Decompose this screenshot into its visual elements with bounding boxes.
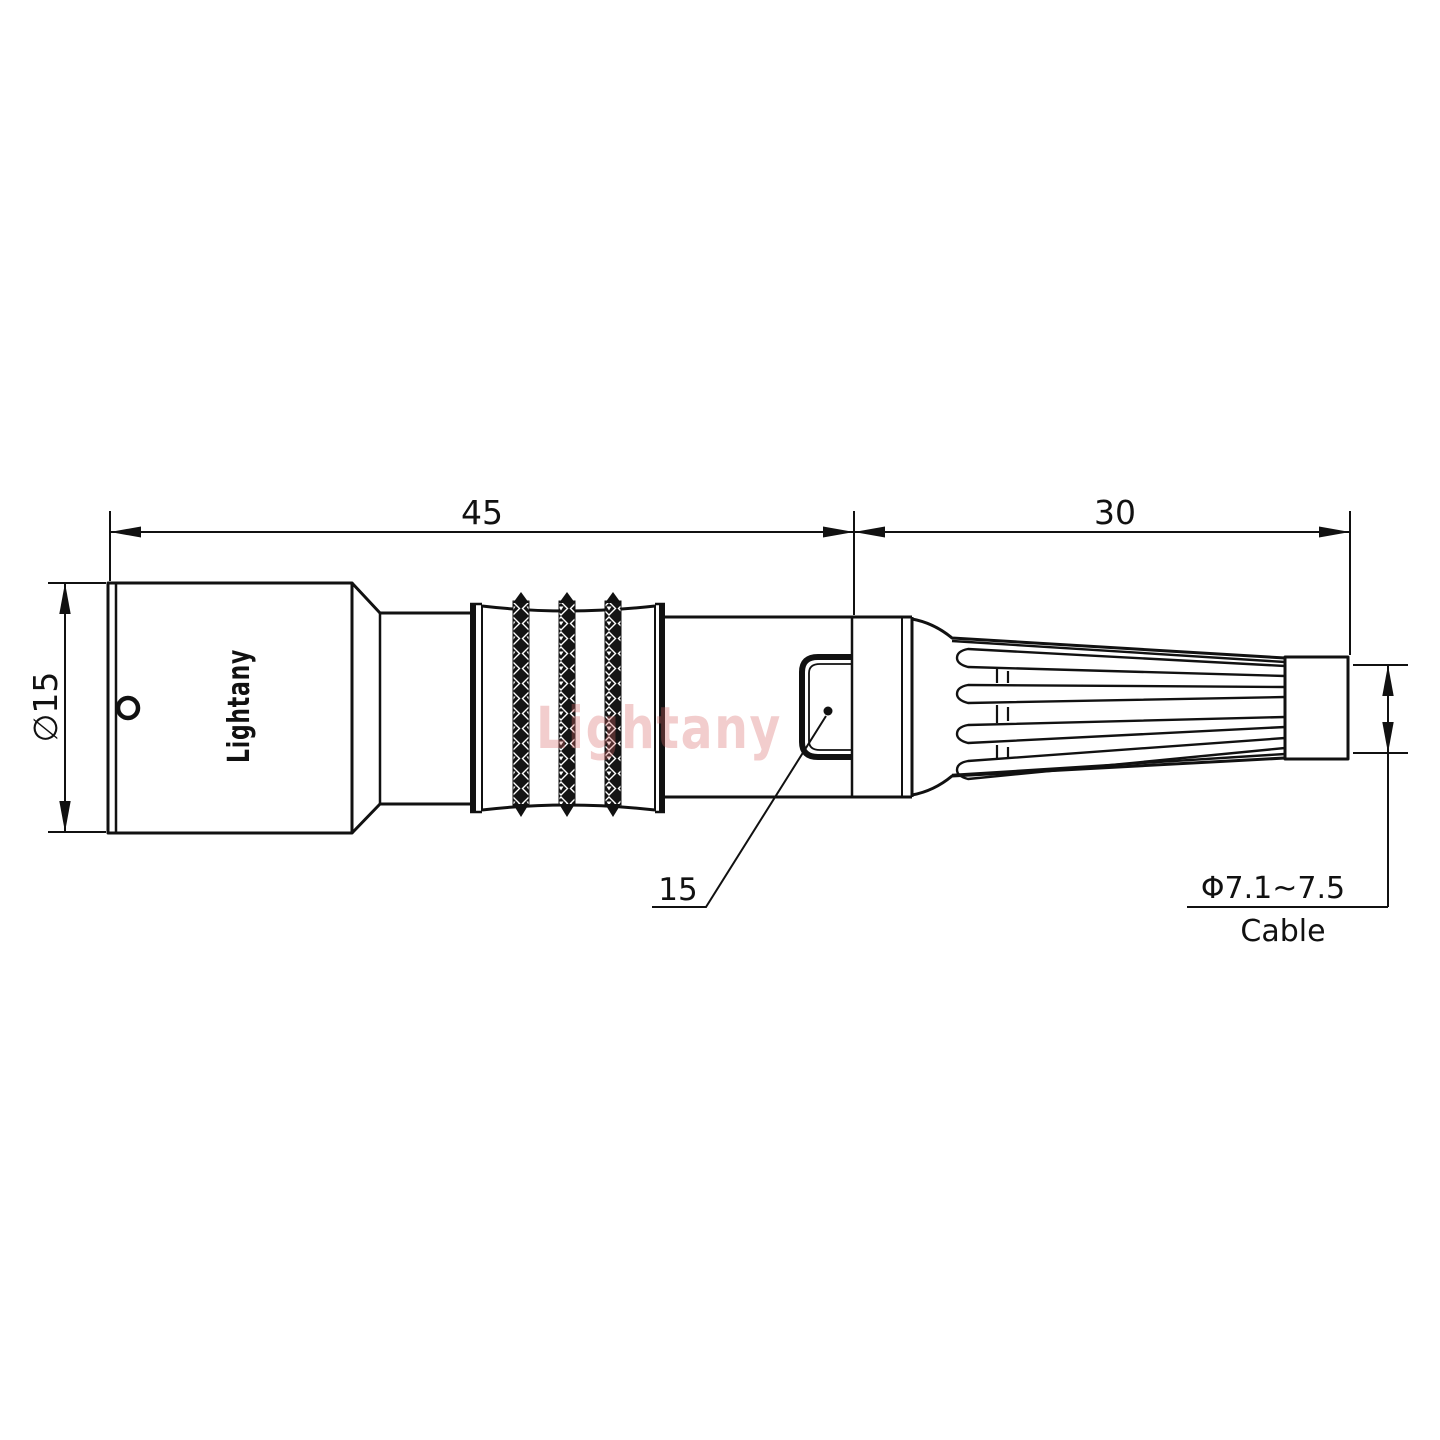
connector-drawing-canvas: Lightany [0,0,1440,1440]
cable-label: Cable [1240,914,1325,949]
strain-relief-rib [957,649,1285,676]
leader-label: 15 [658,872,697,908]
watermark-text: Lightany [536,694,782,762]
shell-hole [118,698,138,718]
rib-root-webs [997,669,1008,759]
brand-text: Lightany [222,649,257,763]
knurl-band [513,592,529,817]
cable-end-cap [1285,657,1348,759]
technical-drawing-page: Lightany [0,0,1440,1440]
dim-rear-length: 30 [1094,493,1136,532]
leader-dot [824,707,833,716]
strain-relief-rib [952,754,1285,775]
dim-cable-diameter: Φ7.1~7.5 [1201,871,1345,906]
strain-relief-rib [957,717,1285,743]
length-dimension: 45 30 [110,493,1350,655]
strain-relief-rib [957,685,1285,703]
cable-dimension: Φ7.1~7.5 Cable [1187,665,1408,949]
diameter-dimension: ∅15 [26,583,106,832]
shell-taper [352,583,380,833]
neck [380,613,470,804]
dim-shell-diameter: ∅15 [26,672,65,743]
strain-relief [912,619,1348,795]
dim-front-length: 45 [461,493,503,532]
